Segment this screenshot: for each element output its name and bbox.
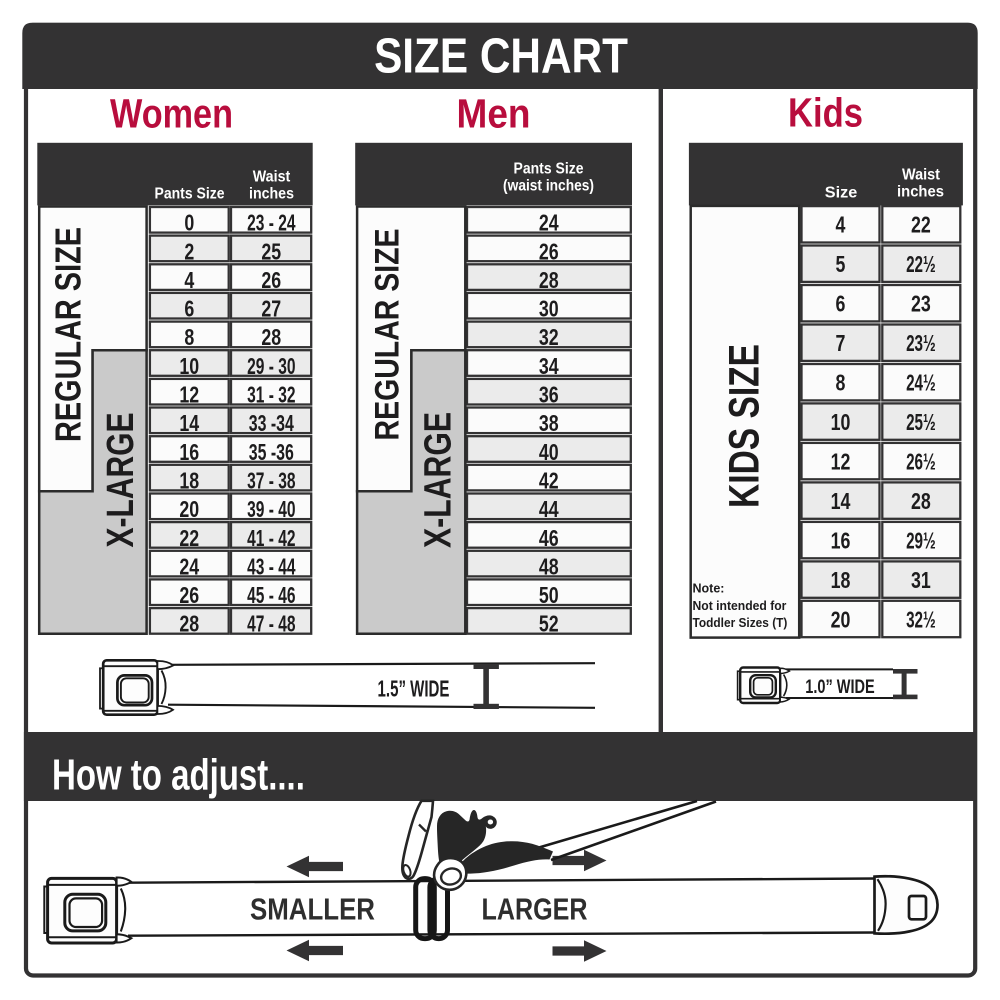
svg-text:6: 6 <box>836 292 846 318</box>
svg-text:24½: 24½ <box>906 371 936 397</box>
svg-text:23: 23 <box>911 292 931 318</box>
svg-text:Waist: Waist <box>253 168 290 186</box>
svg-text:22: 22 <box>911 213 931 239</box>
svg-text:52: 52 <box>539 612 559 638</box>
svg-text:REGULAR SIZE: REGULAR SIZE <box>367 229 406 441</box>
svg-text:37 - 38: 37 - 38 <box>247 469 295 495</box>
svg-text:30: 30 <box>539 296 559 322</box>
svg-text:41 - 42: 41 - 42 <box>247 526 295 552</box>
svg-text:18: 18 <box>831 568 851 594</box>
svg-text:Men: Men <box>457 92 531 137</box>
svg-text:27: 27 <box>261 296 281 322</box>
svg-text:47 - 48: 47 - 48 <box>247 612 295 638</box>
svg-text:inches: inches <box>249 185 294 203</box>
svg-text:14: 14 <box>179 411 199 437</box>
svg-text:29½: 29½ <box>906 528 936 554</box>
svg-text:Pants Size: Pants Size <box>155 185 225 203</box>
svg-text:42: 42 <box>539 468 559 494</box>
svg-text:40: 40 <box>539 440 559 466</box>
svg-text:50: 50 <box>539 583 559 609</box>
svg-text:28: 28 <box>911 489 931 515</box>
svg-text:32½: 32½ <box>906 607 936 633</box>
svg-text:Kids: Kids <box>788 90 863 135</box>
svg-text:8: 8 <box>836 370 846 396</box>
svg-text:12: 12 <box>831 449 851 475</box>
svg-text:4: 4 <box>184 268 194 294</box>
svg-text:REGULAR SIZE: REGULAR SIZE <box>47 227 88 442</box>
svg-text:2: 2 <box>184 239 194 265</box>
svg-text:22½: 22½ <box>906 252 936 278</box>
svg-text:25½: 25½ <box>906 410 936 436</box>
svg-text:29 - 30: 29 - 30 <box>247 354 295 380</box>
svg-text:26: 26 <box>539 239 559 265</box>
svg-text:20: 20 <box>179 497 199 523</box>
svg-text:45 - 46: 45 - 46 <box>247 583 295 609</box>
svg-text:1.5” WIDE: 1.5” WIDE <box>378 676 450 702</box>
svg-text:X-LARGE: X-LARGE <box>100 413 142 548</box>
svg-text:16: 16 <box>179 440 199 466</box>
svg-text:12: 12 <box>179 382 199 408</box>
svg-text:43 - 44: 43 - 44 <box>247 554 295 580</box>
svg-text:SMALLER: SMALLER <box>250 891 375 926</box>
svg-text:23½: 23½ <box>906 331 936 357</box>
svg-text:5: 5 <box>836 252 846 278</box>
svg-text:38: 38 <box>539 411 559 437</box>
svg-text:How to adjust....: How to adjust.... <box>52 751 305 800</box>
svg-text:26½: 26½ <box>906 450 936 476</box>
svg-text:4: 4 <box>836 213 846 239</box>
svg-text:36: 36 <box>539 382 559 408</box>
svg-text:Women: Women <box>110 91 233 136</box>
svg-text:Pants Size: Pants Size <box>514 160 584 178</box>
svg-text:44: 44 <box>539 497 559 523</box>
svg-text:LARGER: LARGER <box>482 892 588 926</box>
svg-text:Size: Size <box>825 184 858 202</box>
svg-text:34: 34 <box>539 354 559 380</box>
svg-text:8: 8 <box>184 325 194 351</box>
svg-text:10: 10 <box>179 354 199 380</box>
svg-text:33 -34: 33 -34 <box>249 411 294 437</box>
svg-text:35 -36: 35 -36 <box>249 440 294 466</box>
svg-text:KIDS SIZE: KIDS SIZE <box>720 344 768 508</box>
svg-text:28: 28 <box>261 325 281 351</box>
svg-text:31 - 32: 31 - 32 <box>247 383 295 409</box>
svg-text:Note:: Note: <box>693 581 725 595</box>
svg-text:Waist: Waist <box>902 166 940 184</box>
svg-text:26: 26 <box>179 583 199 609</box>
svg-text:Not intended for: Not intended for <box>693 599 787 613</box>
svg-text:26: 26 <box>261 268 281 294</box>
svg-text:24: 24 <box>179 554 199 580</box>
svg-text:31: 31 <box>911 568 931 594</box>
svg-text:14: 14 <box>831 489 851 515</box>
svg-text:32: 32 <box>539 325 559 351</box>
svg-text:inches: inches <box>897 183 944 201</box>
svg-text:10: 10 <box>831 410 851 436</box>
svg-text:23 - 24: 23 - 24 <box>247 211 295 237</box>
svg-text:28: 28 <box>539 268 559 294</box>
svg-text:22: 22 <box>179 526 199 552</box>
svg-text:1.0” WIDE: 1.0” WIDE <box>805 676 874 697</box>
svg-text:Toddler Sizes (T): Toddler Sizes (T) <box>693 616 788 630</box>
svg-text:18: 18 <box>179 468 199 494</box>
svg-text:48: 48 <box>539 554 559 580</box>
svg-text:SIZE CHART: SIZE CHART <box>374 29 628 84</box>
svg-text:0: 0 <box>184 210 194 236</box>
svg-text:25: 25 <box>261 239 281 265</box>
svg-text:(waist inches): (waist inches) <box>503 177 594 195</box>
svg-text:6: 6 <box>184 296 194 322</box>
svg-text:46: 46 <box>539 526 559 552</box>
svg-text:16: 16 <box>831 528 851 554</box>
svg-text:20: 20 <box>831 607 851 633</box>
svg-text:39 - 40: 39 - 40 <box>247 497 295 523</box>
svg-text:7: 7 <box>836 331 846 357</box>
svg-text:24: 24 <box>539 210 559 236</box>
svg-text:28: 28 <box>179 612 199 638</box>
svg-text:X-LARGE: X-LARGE <box>417 412 459 548</box>
